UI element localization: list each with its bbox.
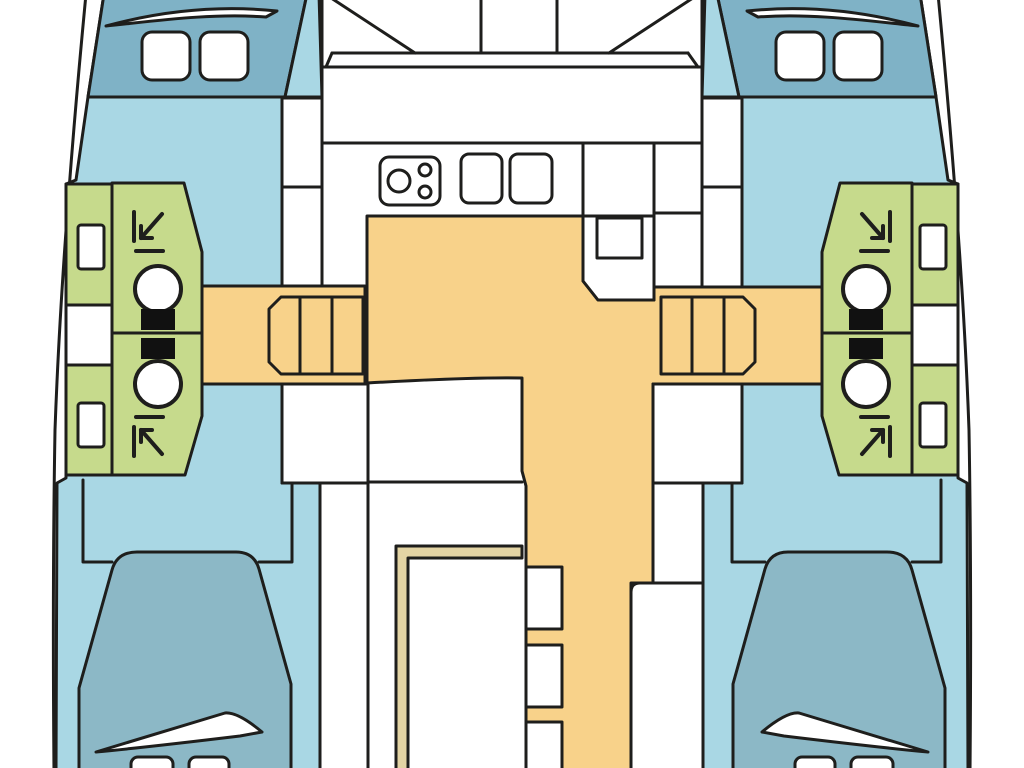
- left-washbasin-bottom-icon: [78, 403, 104, 447]
- galley-seat: [597, 218, 642, 258]
- aft-left-cabin-access: [282, 384, 368, 483]
- left-toilet-bottom-seat: [141, 338, 175, 359]
- left-toilet-top-seat: [141, 309, 175, 330]
- galley-sink-right-icon: [510, 154, 552, 203]
- floorplan-canvas: [0, 0, 1024, 768]
- right-berth-pillow-2: [795, 757, 835, 768]
- right-toilet-top-icon: [843, 266, 889, 312]
- left-berth-pillow-1: [131, 757, 173, 768]
- right-toilet-top-seat: [849, 309, 883, 330]
- right-bow-hatch-2: [834, 32, 882, 80]
- left-berth-pillow-2: [189, 757, 229, 768]
- left-bow-hatch-1: [142, 32, 190, 80]
- right-vanity-gap: [912, 305, 958, 365]
- walkway-step-3: [526, 722, 562, 768]
- right-berth-pillow-1: [851, 757, 893, 768]
- left-toilet-bottom-icon: [135, 361, 181, 407]
- cockpit-bench-end-left: [326, 53, 332, 67]
- aft-right-locker-lower: [631, 583, 703, 768]
- left-washbasin-top-icon: [78, 225, 104, 269]
- galley-sink-left-icon: [461, 154, 502, 203]
- right-washbasin-top-icon: [920, 225, 946, 269]
- right-washbasin-bottom-icon: [920, 403, 946, 447]
- left-vanity-gap: [66, 305, 112, 365]
- left-bow-hatch-2: [200, 32, 248, 80]
- catamaran-floorplan: [0, 0, 1024, 768]
- right-deck-step-box: [702, 98, 742, 187]
- plan-root: [53, 0, 970, 768]
- cockpit-bench-end-right: [688, 53, 698, 67]
- aft-trim-band: [396, 546, 522, 768]
- right-toilet-bottom-icon: [843, 361, 889, 407]
- left-toilet-top-icon: [135, 266, 181, 312]
- walkway-step-1: [526, 567, 562, 629]
- cockpit-seat-diagonal-left: [325, 0, 415, 53]
- cockpit-seat-diagonal-right: [609, 0, 699, 53]
- walkway-step-2: [526, 645, 562, 707]
- left-walkway-floor: [202, 286, 365, 384]
- right-toilet-bottom-seat: [849, 338, 883, 359]
- aft-right-cabin-access: [653, 384, 742, 483]
- right-bow-hatch-1: [776, 32, 824, 80]
- left-deck-step-box: [282, 98, 322, 187]
- aft-right-locker-upper: [653, 483, 703, 583]
